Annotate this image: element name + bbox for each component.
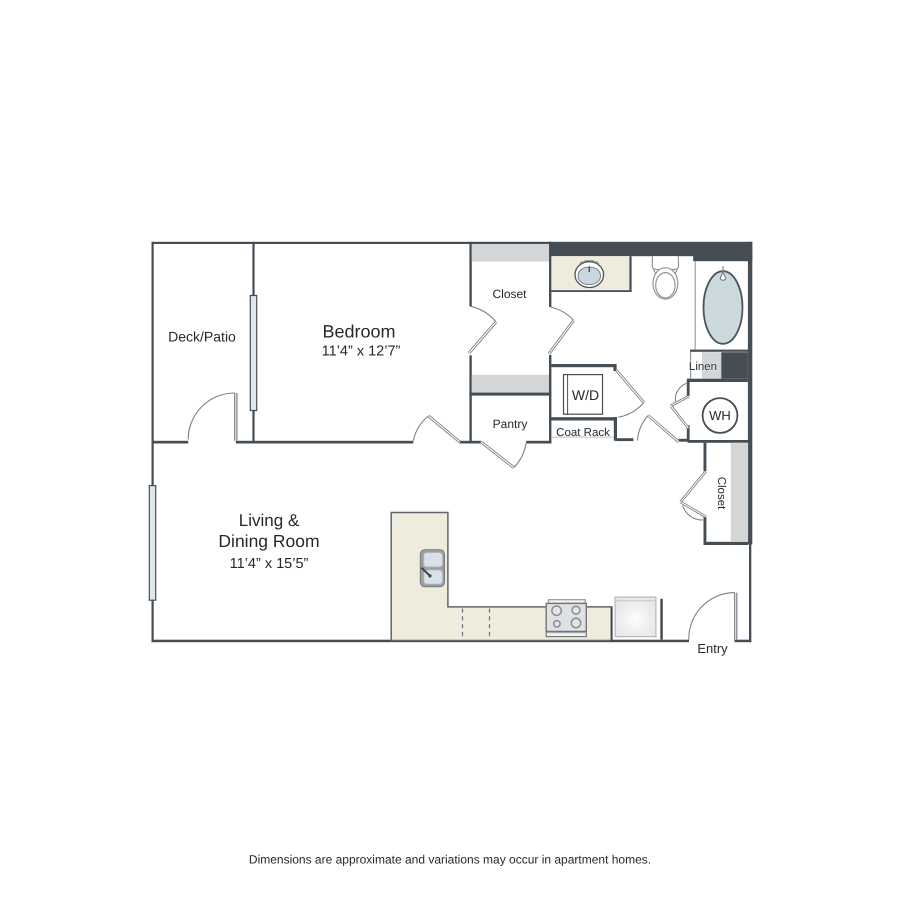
- svg-text:Dimensions are approximate and: Dimensions are approximate and variation…: [249, 853, 651, 867]
- svg-text:11’4” x 15’5”: 11’4” x 15’5”: [230, 556, 309, 572]
- svg-text:Entry: Entry: [697, 641, 728, 656]
- svg-text:Dining Room: Dining Room: [218, 531, 319, 551]
- svg-text:W/D: W/D: [572, 387, 599, 403]
- svg-text:Living &: Living &: [239, 511, 300, 530]
- svg-text:Linen: Linen: [689, 361, 717, 373]
- svg-text:11’4” x 12’7”: 11’4” x 12’7”: [322, 344, 401, 360]
- svg-text:WH: WH: [709, 408, 731, 423]
- svg-text:Pantry: Pantry: [493, 417, 528, 431]
- svg-text:Coat Rack: Coat Rack: [556, 427, 610, 439]
- svg-text:Bedroom: Bedroom: [322, 322, 395, 342]
- svg-text:Closet: Closet: [492, 287, 527, 301]
- svg-text:Closet: Closet: [715, 477, 727, 510]
- svg-text:Deck/Patio: Deck/Patio: [168, 329, 236, 345]
